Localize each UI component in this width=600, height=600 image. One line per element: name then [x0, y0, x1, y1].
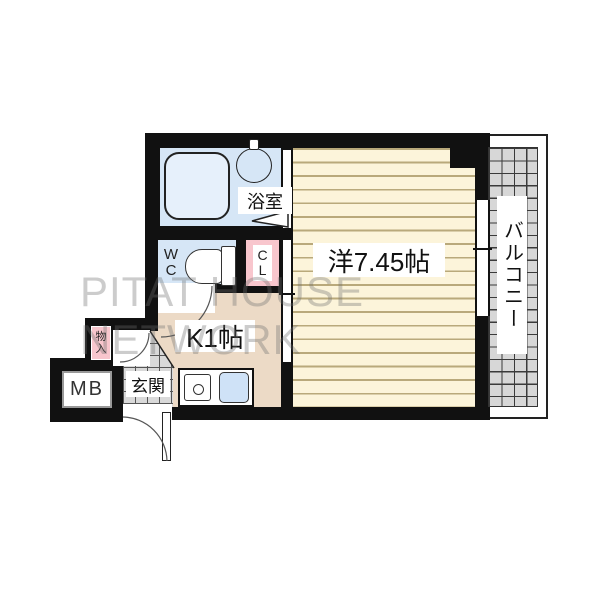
wc-door-opening	[158, 283, 215, 313]
window-tick	[473, 248, 492, 250]
balcony-label: バルコニー	[497, 196, 527, 354]
entrance-label: 玄関	[126, 371, 170, 397]
storage-label-char2: 入	[96, 343, 107, 355]
western-room-label: 洋7.45帖	[313, 243, 445, 277]
bathroom-label: 浴室	[238, 187, 292, 214]
meter-box-label: MB	[62, 371, 112, 408]
bathroom-tap	[249, 139, 259, 150]
bathtub	[164, 152, 230, 220]
wc-label: W C	[161, 243, 181, 283]
kitchen-label: K1帖	[175, 320, 255, 352]
storage-label-char1: 物	[96, 331, 107, 343]
floor-plan: 洋7.45帖 K1帖 浴室 玄関 MB W C C L 物 入 バルコニー PI…	[0, 0, 600, 600]
toilet-bowl	[185, 249, 223, 284]
storage-label: 物 入	[91, 326, 111, 360]
storage-door-opening	[113, 330, 150, 366]
kitchen-stove	[184, 374, 211, 401]
balcony-window	[475, 200, 490, 316]
stove-burner-icon	[193, 384, 204, 395]
closet-label-char1: C	[257, 248, 267, 263]
kitchen-room-sliding-door	[281, 240, 293, 362]
sliding-door-tick	[279, 293, 295, 295]
kitchen-sink	[219, 372, 249, 403]
closet-label-char2: L	[259, 263, 267, 278]
wc-label-char2: C	[166, 263, 177, 280]
entrance-door-panel	[162, 412, 171, 461]
wall-pillar	[450, 133, 490, 168]
closet-label: C L	[253, 245, 272, 281]
toilet-tank	[221, 246, 236, 286]
wc-label-char1: W	[164, 247, 178, 264]
bathroom-sink	[236, 148, 272, 183]
entrance-door-arc	[123, 417, 167, 461]
